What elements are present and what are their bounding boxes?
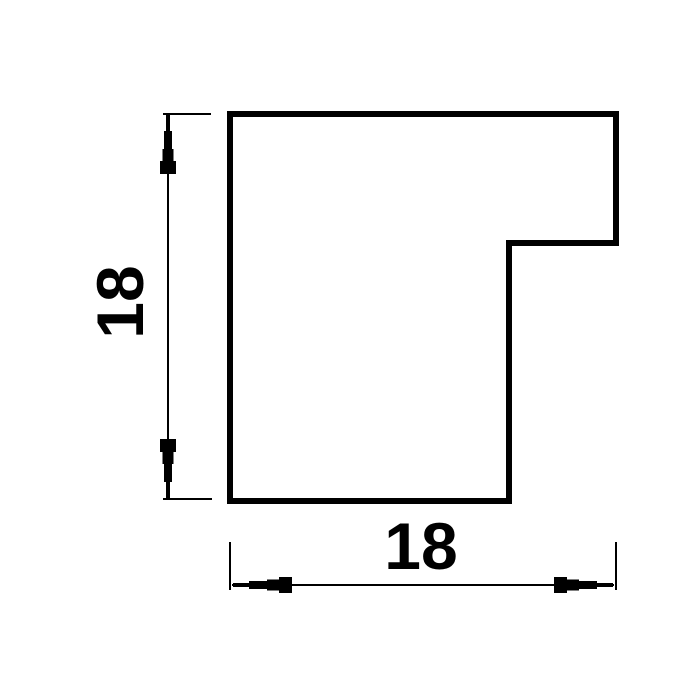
dimension-arrow-up-icon (160, 115, 176, 174)
vertical-dimension (160, 114, 212, 499)
dimension-arrow-right-icon (554, 577, 613, 593)
technical-drawing-canvas: 18 18 (0, 0, 700, 700)
vertical-dimension-label: 18 (87, 265, 153, 338)
horizontal-dimension-label: 18 (384, 513, 457, 579)
dimension-arrow-left-icon (233, 577, 292, 593)
dimension-arrow-down-icon (160, 439, 176, 498)
profile-drawing (0, 0, 700, 700)
profile-outline (230, 114, 616, 501)
